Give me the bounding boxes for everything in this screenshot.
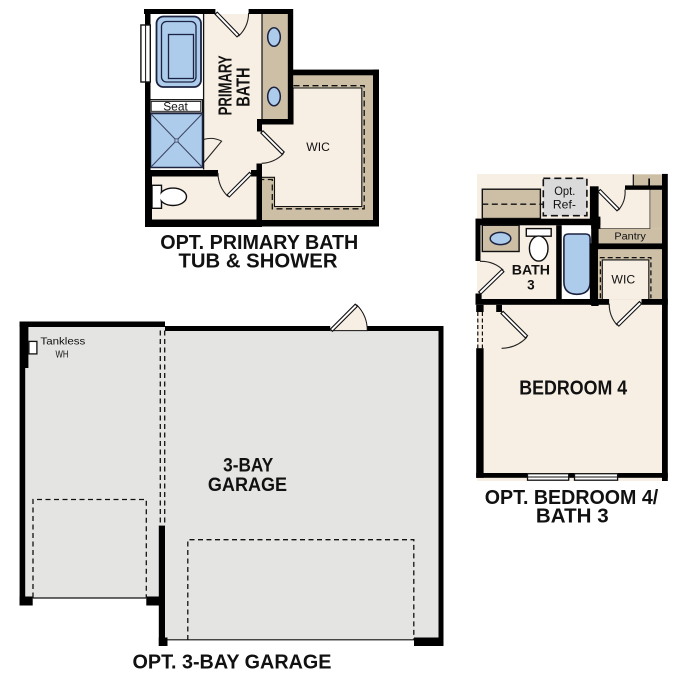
svg-text:3-BAY: 3-BAY: [223, 455, 273, 476]
svg-text:Ref-: Ref-: [553, 198, 576, 212]
svg-text:3: 3: [527, 278, 535, 293]
svg-text:Seat: Seat: [163, 99, 188, 113]
svg-text:BATH: BATH: [233, 68, 253, 107]
svg-text:GARAGE: GARAGE: [208, 475, 287, 496]
svg-text:TUB & SHOWER: TUB & SHOWER: [179, 250, 338, 273]
svg-text:BATH: BATH: [512, 262, 550, 277]
svg-text:WIC: WIC: [611, 274, 635, 286]
svg-text:WIC: WIC: [306, 140, 330, 154]
svg-text:Pantry: Pantry: [614, 232, 645, 243]
svg-text:BEDROOM 4: BEDROOM 4: [519, 378, 628, 400]
svg-text:BATH 3: BATH 3: [536, 504, 609, 527]
svg-text:Tankless: Tankless: [40, 336, 85, 348]
svg-text:WH: WH: [56, 348, 69, 360]
svg-text:Opt.: Opt.: [554, 184, 575, 198]
svg-text:PRIMARY: PRIMARY: [215, 55, 235, 115]
svg-text:OPT. 3-BAY GARAGE: OPT. 3-BAY GARAGE: [133, 650, 332, 673]
